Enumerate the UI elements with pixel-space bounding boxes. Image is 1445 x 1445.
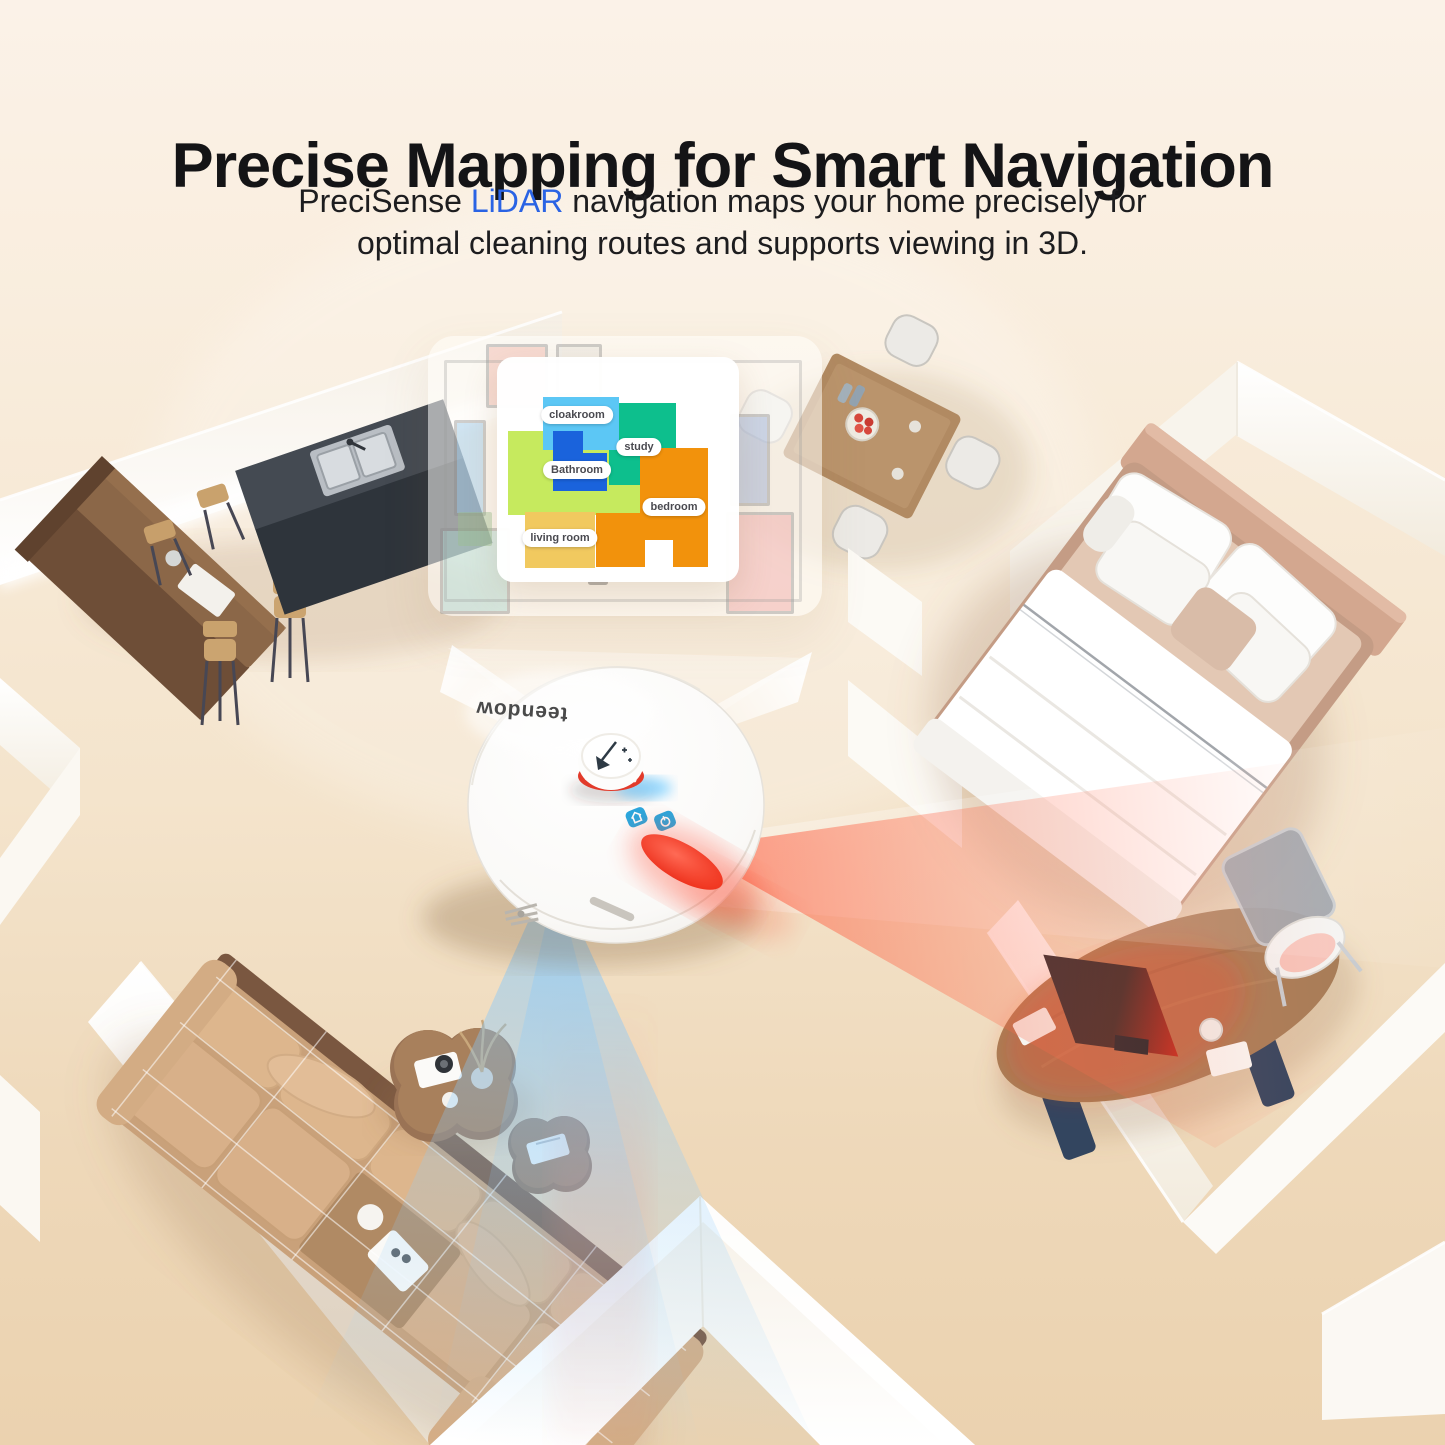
poster: cloakroom study Bathroom bedroom living … — [0, 0, 1445, 1445]
subtitle-line1-pre: PreciSense — [298, 183, 471, 219]
turret-cap — [582, 734, 640, 778]
subtitle-line2: optimal cleaning routes and supports vie… — [357, 225, 1088, 261]
subtitle: PreciSense LiDAR navigation maps your ho… — [0, 180, 1445, 264]
subtitle-line1-post: navigation maps your home precisely for — [563, 183, 1146, 219]
subtitle-lidar-highlight: LiDAR — [471, 183, 563, 219]
